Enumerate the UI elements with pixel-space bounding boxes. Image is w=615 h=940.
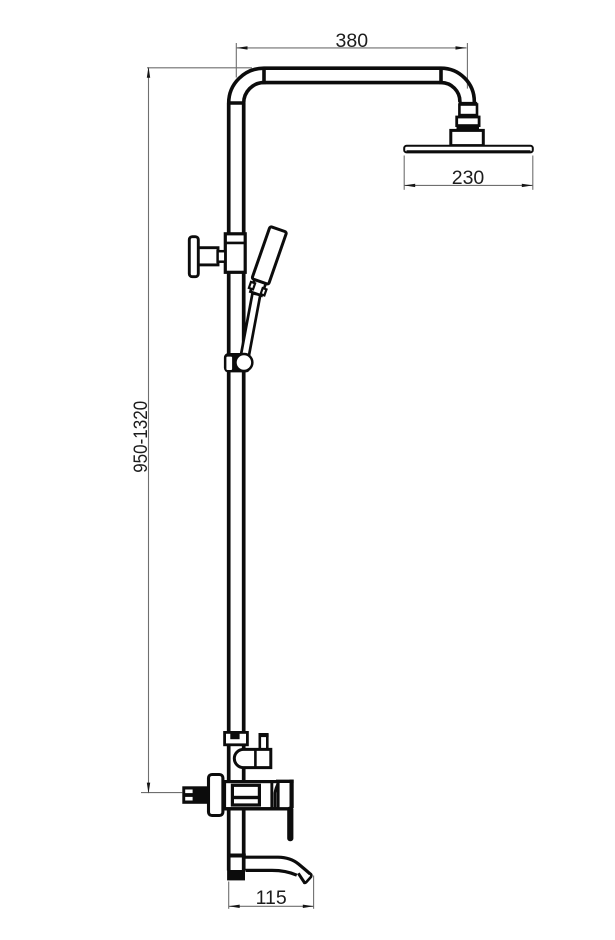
svg-text:950-1320: 950-1320 <box>130 401 152 473</box>
svg-text:230: 230 <box>452 167 485 189</box>
svg-text:115: 115 <box>256 887 287 909</box>
svg-text:380: 380 <box>336 30 369 52</box>
